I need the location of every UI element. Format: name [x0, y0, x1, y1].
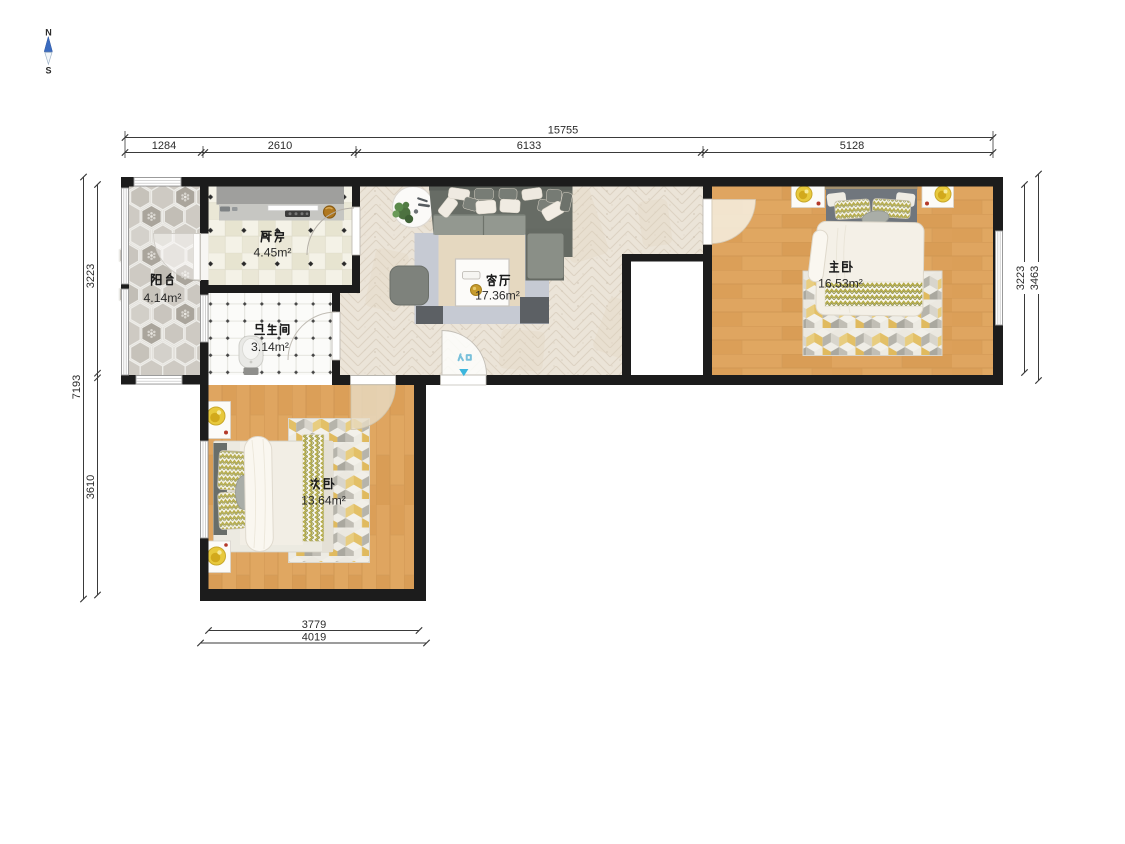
svg-text:2610: 2610 [268, 140, 292, 152]
svg-text:1284: 1284 [152, 140, 176, 152]
svg-text:16.53m²: 16.53m² [818, 276, 863, 290]
svg-text:3223: 3223 [1015, 266, 1027, 290]
svg-text:3223: 3223 [85, 264, 97, 288]
svg-text:3463: 3463 [1029, 266, 1041, 290]
svg-text:6133: 6133 [517, 140, 541, 152]
svg-text:4.45m²: 4.45m² [254, 245, 292, 259]
svg-text:5128: 5128 [840, 140, 864, 152]
svg-text:3779: 3779 [302, 619, 326, 631]
svg-text:15755: 15755 [548, 125, 579, 137]
svg-text:4019: 4019 [302, 632, 326, 644]
svg-text:N: N [45, 28, 52, 38]
svg-text:13.64m²: 13.64m² [301, 494, 346, 508]
svg-text:7193: 7193 [71, 375, 83, 399]
svg-text:S: S [45, 66, 51, 76]
svg-text:3.14m²: 3.14m² [251, 340, 289, 354]
svg-text:4.14m²: 4.14m² [144, 291, 182, 305]
svg-text:3610: 3610 [85, 475, 97, 499]
svg-text:17.36m²: 17.36m² [475, 289, 520, 303]
